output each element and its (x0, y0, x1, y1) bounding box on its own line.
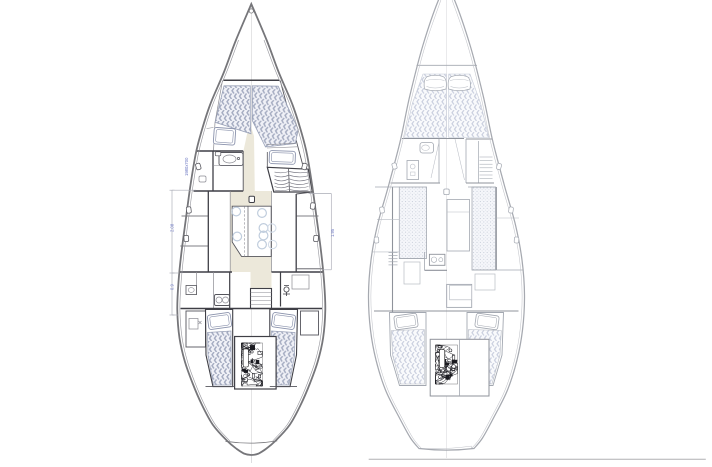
svg-text:1.95: 1.95 (330, 228, 335, 237)
svg-text:2.08: 2.08 (169, 223, 174, 232)
svg-text:1980x700: 1980x700 (184, 157, 189, 176)
svg-text:0.9: 0.9 (169, 284, 174, 290)
